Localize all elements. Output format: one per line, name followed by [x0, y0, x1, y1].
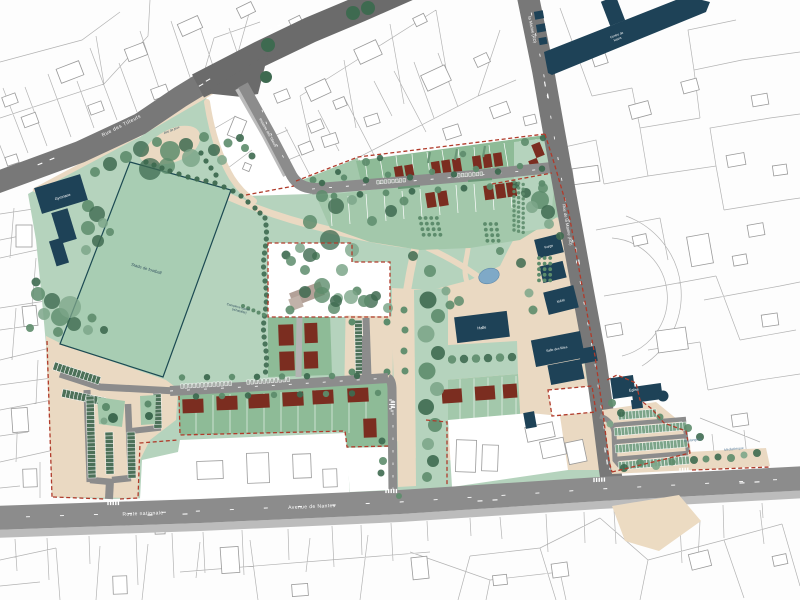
svg-text:Boulangerie: Boulangerie [684, 437, 703, 443]
